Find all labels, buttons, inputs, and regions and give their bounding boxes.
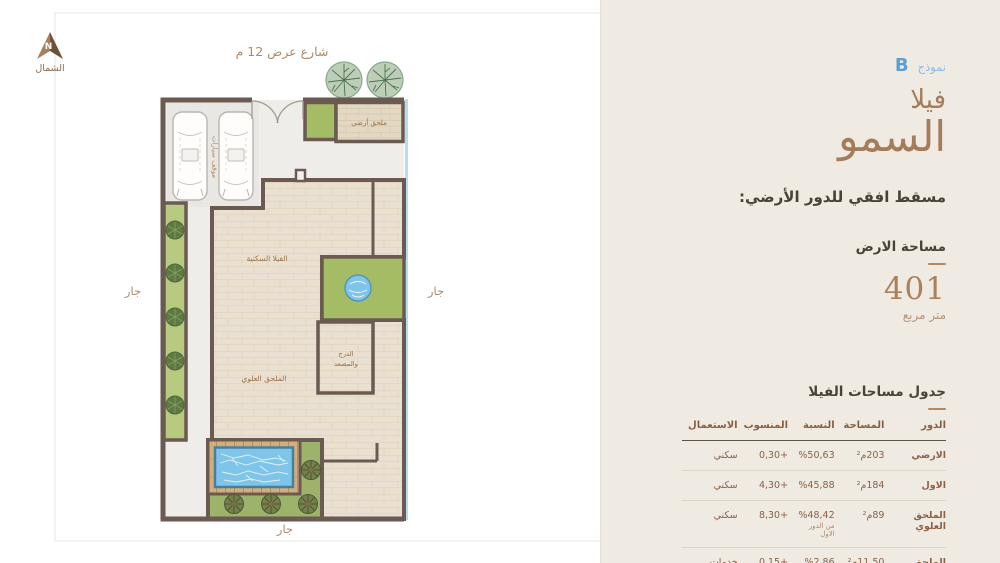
neighbor-label-bottom: جار xyxy=(276,522,293,537)
cell-level: +0,30 xyxy=(738,441,788,471)
cell-level: +0,15 xyxy=(738,548,788,563)
cell-use: خدمات xyxy=(682,548,738,563)
cell-use: سكني xyxy=(682,501,738,548)
stairs-label-1: الدرج xyxy=(338,350,353,358)
ratio-note: من الدور الاول xyxy=(794,522,835,538)
palm-tree-icon xyxy=(299,495,318,514)
table-row: الملحق الارضي 11,50م² %2,86 +0,15 خدمات xyxy=(682,548,946,563)
page: N الشمال شارع عرض 12 م موقف سيارات xyxy=(0,0,1000,563)
model-letter: B xyxy=(895,55,913,76)
tree-icon xyxy=(367,62,403,98)
cell-area: 89م² xyxy=(835,501,885,548)
info-panel: نموذج B فيلا السمو مسقط افقي للدور الأرض… xyxy=(600,0,1000,563)
table-row: الارضي 203م² %50,63 +0,30 سكني xyxy=(682,441,946,471)
palm-tree-icon xyxy=(302,461,321,480)
tree-icon xyxy=(166,264,184,282)
model-row: نموذج B xyxy=(629,56,946,77)
divider-dash xyxy=(928,263,946,265)
cell-ratio: %45,88 xyxy=(788,471,835,501)
neighbor-label-left: جار xyxy=(124,284,141,299)
divider-dash xyxy=(928,408,946,410)
cell-ratio: %48,42 من الدور الاول xyxy=(788,501,835,548)
fountain-icon xyxy=(345,275,371,301)
cell-floor: الارضي xyxy=(884,441,946,471)
north-arrow-icon: N xyxy=(37,32,63,59)
street-label: شارع عرض 12 م xyxy=(236,44,329,60)
cell-level: +4,30 xyxy=(738,471,788,501)
land-area-value: 401 xyxy=(629,271,946,307)
cell-ratio: %50,63 xyxy=(788,441,835,471)
model-label: نموذج xyxy=(918,60,946,74)
villa-title-line2: السمو xyxy=(629,116,946,158)
cell-area: 203م² xyxy=(835,441,885,471)
col-area: المساحة xyxy=(835,420,885,441)
villa-title-line1: فيلا xyxy=(629,87,946,114)
north-letter: N xyxy=(45,42,53,52)
cell-floor: الاول xyxy=(884,471,946,501)
col-use: الاستعمال xyxy=(682,420,738,441)
cell-use: سكني xyxy=(682,471,738,501)
floor-plan: N الشمال شارع عرض 12 م موقف سيارات xyxy=(0,0,600,563)
col-level: المنسوب xyxy=(738,420,788,441)
tree-icon xyxy=(166,396,184,414)
ratio-value: %48,42 xyxy=(794,510,835,521)
table-row: الاول 184م² %45,88 +4,30 سكني xyxy=(682,471,946,501)
ground-annex-label: ملحق أرضي xyxy=(351,118,387,127)
floor-plan-card: N الشمال شارع عرض 12 م موقف سيارات xyxy=(0,0,600,563)
table-row: الملحق العلوي 89م² %48,42 من الدور الاول… xyxy=(682,501,946,548)
palm-tree-icon xyxy=(262,495,281,514)
palm-tree-icon xyxy=(225,495,244,514)
cell-floor: الملحق العلوي xyxy=(884,501,946,548)
swimming-pool xyxy=(215,448,293,488)
car-icon xyxy=(173,112,207,200)
land-area-label: مساحة الارض xyxy=(629,239,946,255)
tree-icon xyxy=(166,352,184,370)
cell-ratio: %2,86 xyxy=(788,548,835,563)
annex-garden xyxy=(305,103,336,140)
tree-icon xyxy=(166,308,184,326)
cell-level: +8,30 xyxy=(738,501,788,548)
cell-area: 184م² xyxy=(835,471,885,501)
areas-table-title: جدول مساحات الفيلا xyxy=(629,384,946,400)
tree-icon xyxy=(326,62,362,98)
car-icon xyxy=(219,112,253,200)
col-ratio: النسبة xyxy=(788,420,835,441)
tree-icon xyxy=(166,221,184,239)
col-floor: الدور xyxy=(884,420,946,441)
land-area-unit: متر مربع xyxy=(629,308,946,322)
upper-annex-label: الملحق العلوي xyxy=(242,374,287,383)
wall-stub xyxy=(296,170,305,181)
stairs-label-2: والمصعد xyxy=(334,360,358,368)
plan-subtitle: مسقط افقي للدور الأرضي: xyxy=(629,188,946,206)
north-label: الشمال xyxy=(35,63,64,74)
table-header-row: الدور المساحة النسبة المنسوب الاستعمال xyxy=(682,420,946,441)
neighbor-label-right: جار xyxy=(427,284,444,299)
villa-label: الفيلا السكنية xyxy=(246,254,287,263)
cell-use: سكني xyxy=(682,441,738,471)
cell-floor: الملحق الارضي xyxy=(884,548,946,563)
parking-label: موقف سيارات xyxy=(211,136,219,178)
cell-area: 11,50م² xyxy=(835,548,885,563)
areas-table: الدور المساحة النسبة المنسوب الاستعمال ا… xyxy=(682,420,946,563)
